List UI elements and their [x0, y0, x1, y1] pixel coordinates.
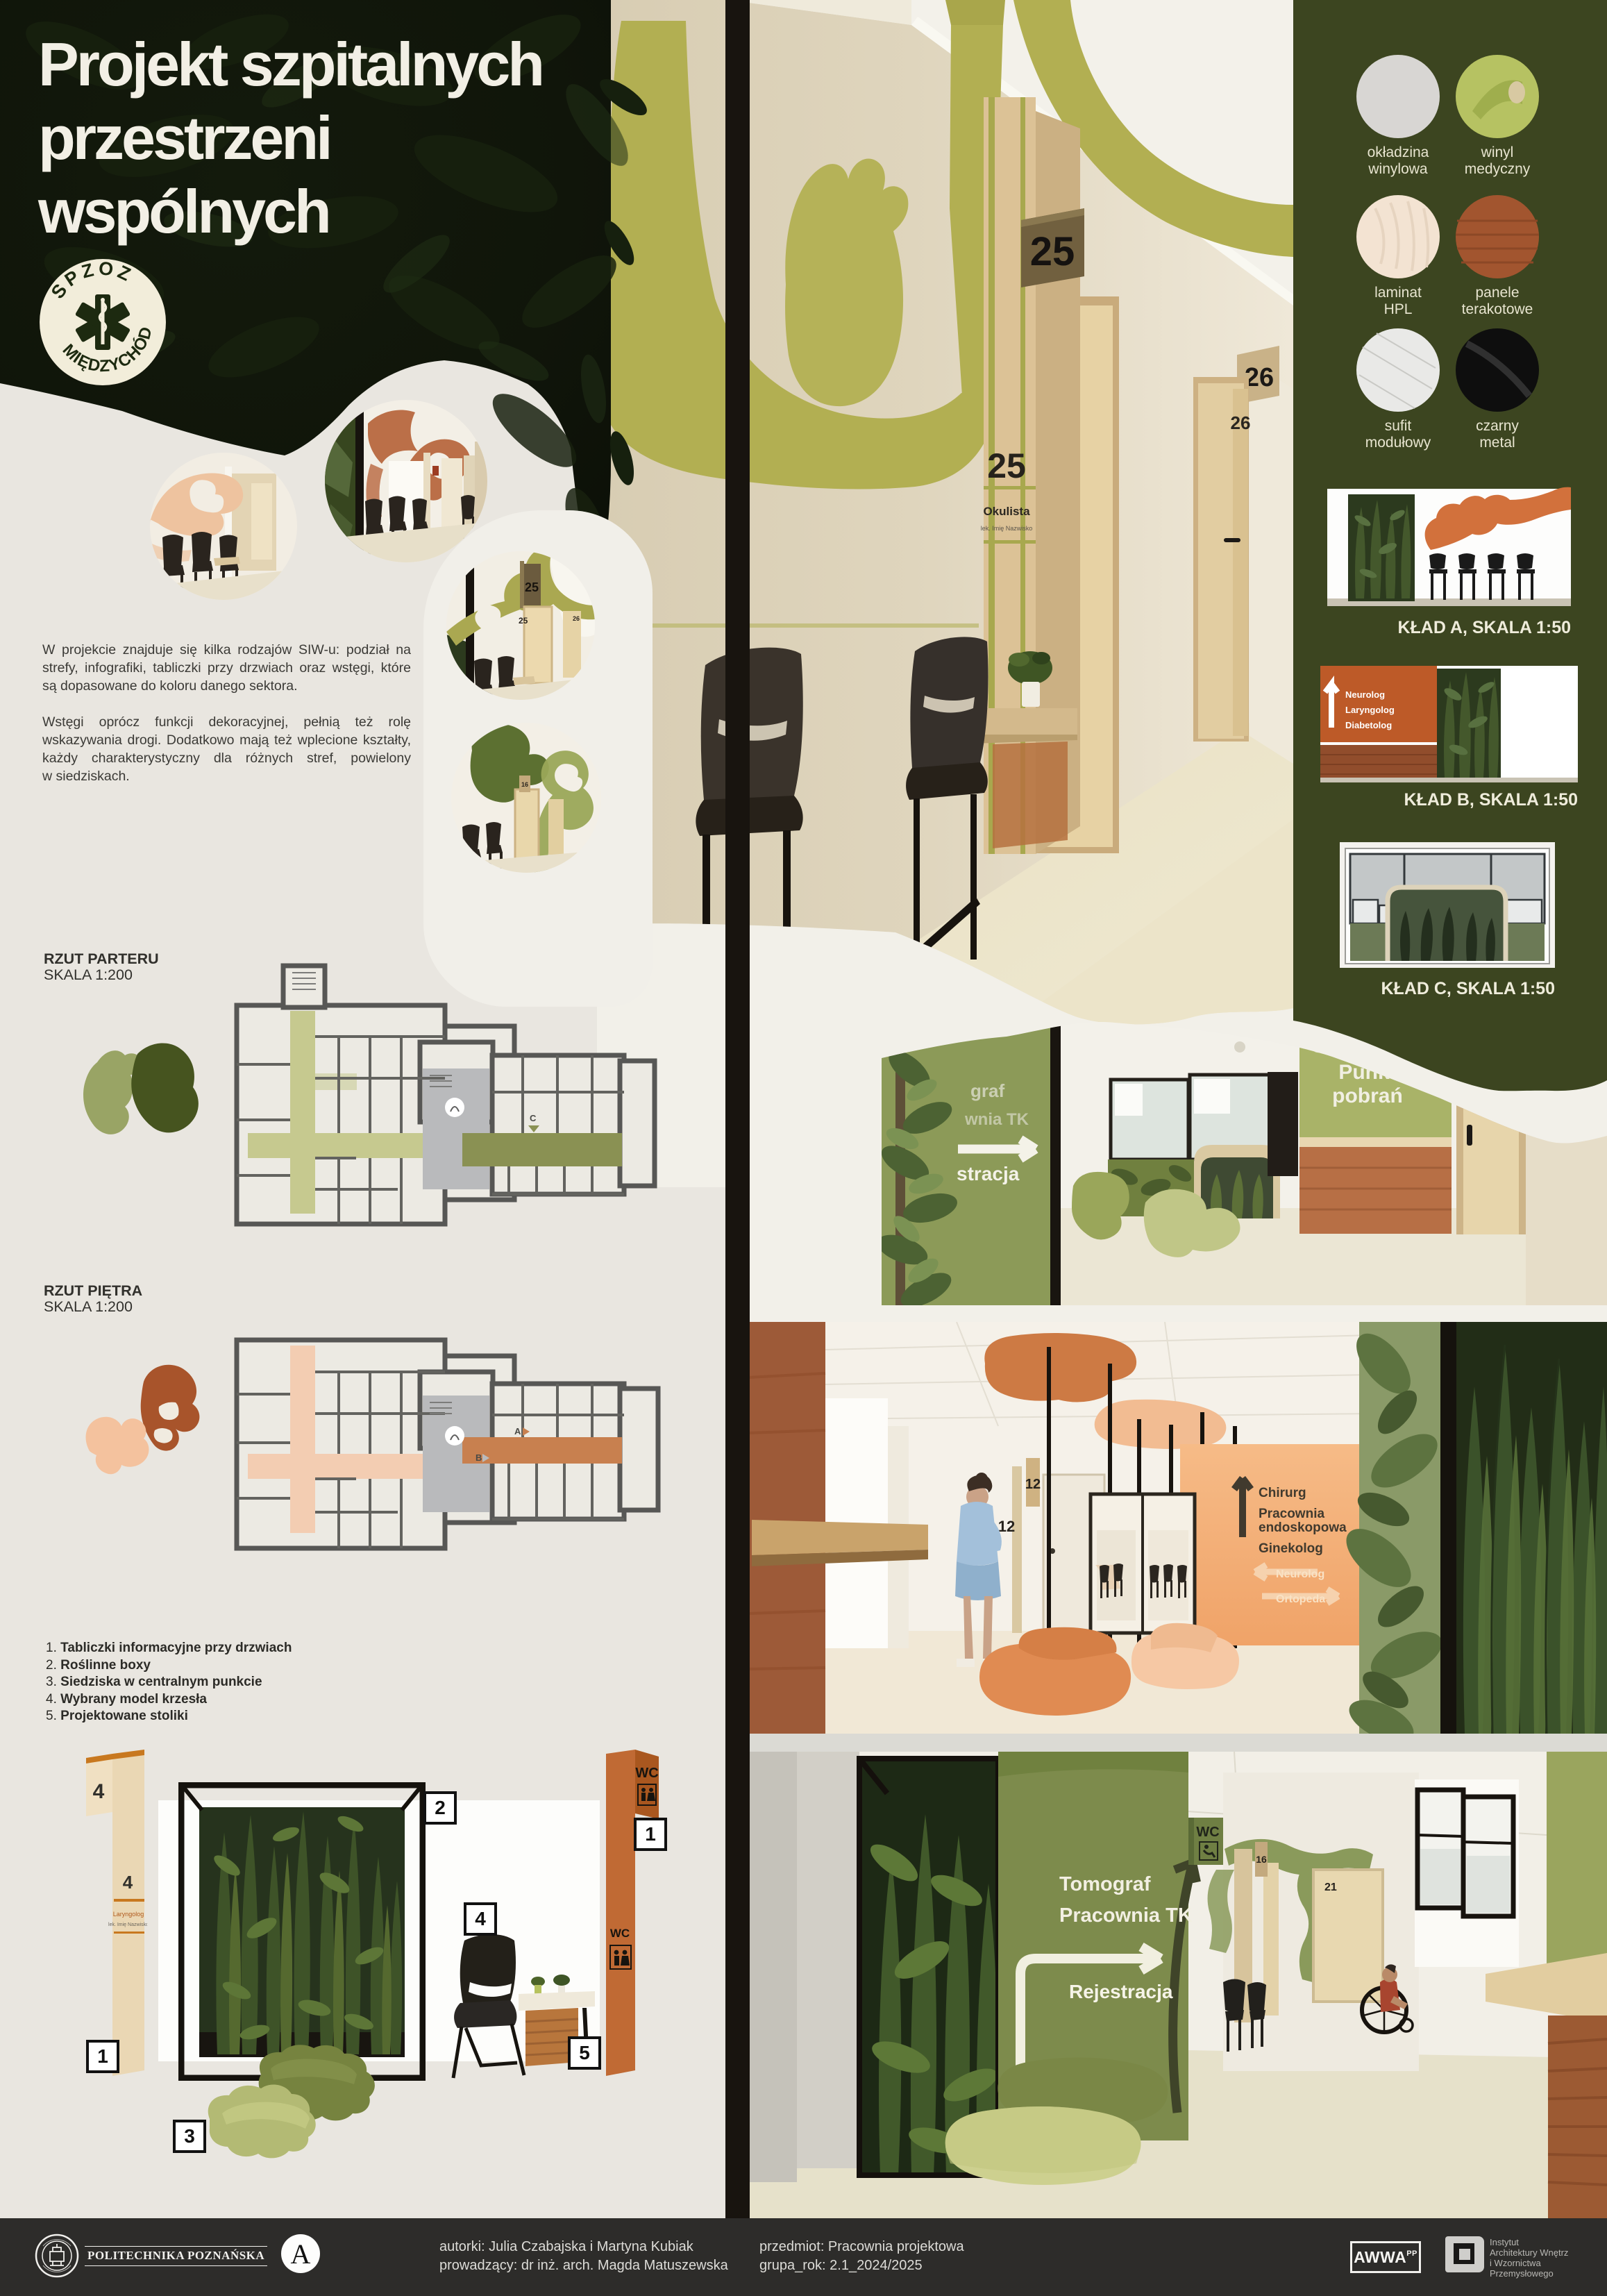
svg-text:25: 25 — [987, 446, 1026, 485]
svg-text:B: B — [476, 1452, 482, 1463]
svg-text:lek. Imię Nazwisko: lek. Imię Nazwisko — [108, 1922, 147, 1927]
svg-text:Laryngolog: Laryngolog — [1345, 705, 1395, 715]
svg-text:26: 26 — [1245, 363, 1274, 392]
svg-text:KŁAD B, SKALA 1:50: KŁAD B, SKALA 1:50 — [1404, 790, 1579, 810]
svg-text:pobrań: pobrań — [1332, 1084, 1403, 1107]
svg-text:12: 12 — [1025, 1477, 1041, 1492]
svg-text:26: 26 — [1231, 412, 1251, 433]
svg-text:metal: metal — [1479, 435, 1515, 451]
svg-text:Neurolog: Neurolog — [1345, 689, 1385, 700]
svg-text:winyl: winyl — [1481, 144, 1514, 160]
svg-text:Punkt: Punkt — [1338, 1061, 1396, 1084]
svg-text:Okulista: Okulista — [1311, 1034, 1393, 1057]
svg-text:16: 16 — [1256, 1854, 1267, 1865]
svg-text:21: 21 — [1324, 1882, 1337, 1893]
svg-text:KŁAD C, SKALA 1:50: KŁAD C, SKALA 1:50 — [1381, 979, 1556, 998]
svg-text:25: 25 — [519, 616, 528, 626]
svg-text:12: 12 — [998, 1518, 1015, 1535]
svg-text:Ortopeda: Ortopeda — [1276, 1593, 1325, 1605]
svg-text:stracja: stracja — [957, 1163, 1020, 1184]
svg-text:Pracownia: Pracownia — [1259, 1507, 1324, 1521]
svg-text:graf: graf — [970, 1080, 1004, 1101]
svg-text:modułowy: modułowy — [1365, 435, 1431, 451]
svg-text:Tomograf: Tomograf — [1059, 1873, 1151, 1895]
svg-text:C: C — [530, 1113, 537, 1123]
svg-text:wnia TK: wnia TK — [964, 1110, 1029, 1129]
svg-text:Okulista: Okulista — [983, 505, 1030, 518]
svg-text:terakotowe: terakotowe — [1462, 301, 1533, 317]
svg-text:A: A — [514, 1426, 521, 1436]
svg-text:Diabetolog: Diabetolog — [1345, 720, 1392, 730]
svg-text:WC: WC — [610, 1927, 630, 1940]
svg-text:Chirurg: Chirurg — [1259, 1486, 1306, 1500]
svg-text:winylowa: winylowa — [1368, 161, 1428, 177]
svg-text:medyczny: medyczny — [1465, 161, 1531, 177]
svg-text:endoskopowa: endoskopowa — [1259, 1520, 1347, 1535]
svg-text:Neurolog: Neurolog — [1276, 1568, 1324, 1580]
svg-text:czarny: czarny — [1476, 418, 1519, 434]
svg-text:25: 25 — [525, 580, 539, 594]
svg-text:4: 4 — [123, 1872, 133, 1893]
svg-text:okładzina: okładzina — [1368, 144, 1429, 160]
svg-text:25: 25 — [1030, 229, 1075, 274]
svg-text:panele: panele — [1475, 285, 1519, 301]
svg-text:Rejestracja: Rejestracja — [1069, 1981, 1173, 2002]
svg-text:16: 16 — [521, 781, 528, 788]
svg-text:HPL: HPL — [1384, 301, 1413, 317]
svg-text:26: 26 — [573, 615, 580, 622]
svg-text:lek. Imię Nazwisko: lek. Imię Nazwisko — [981, 525, 1033, 532]
svg-text:WC: WC — [1196, 1825, 1219, 1840]
svg-text:Ginekolog: Ginekolog — [1259, 1541, 1323, 1556]
svg-text:Pracownia TK: Pracownia TK — [1059, 1904, 1193, 1927]
svg-text:WC: WC — [635, 1766, 658, 1781]
svg-text:4: 4 — [93, 1780, 105, 1803]
svg-text:sufit: sufit — [1385, 418, 1412, 434]
svg-text:KŁAD A, SKALA 1:50: KŁAD A, SKALA 1:50 — [1397, 618, 1571, 637]
svg-text:laminat: laminat — [1374, 285, 1422, 301]
svg-text:Laryngolog: Laryngolog — [113, 1911, 144, 1918]
